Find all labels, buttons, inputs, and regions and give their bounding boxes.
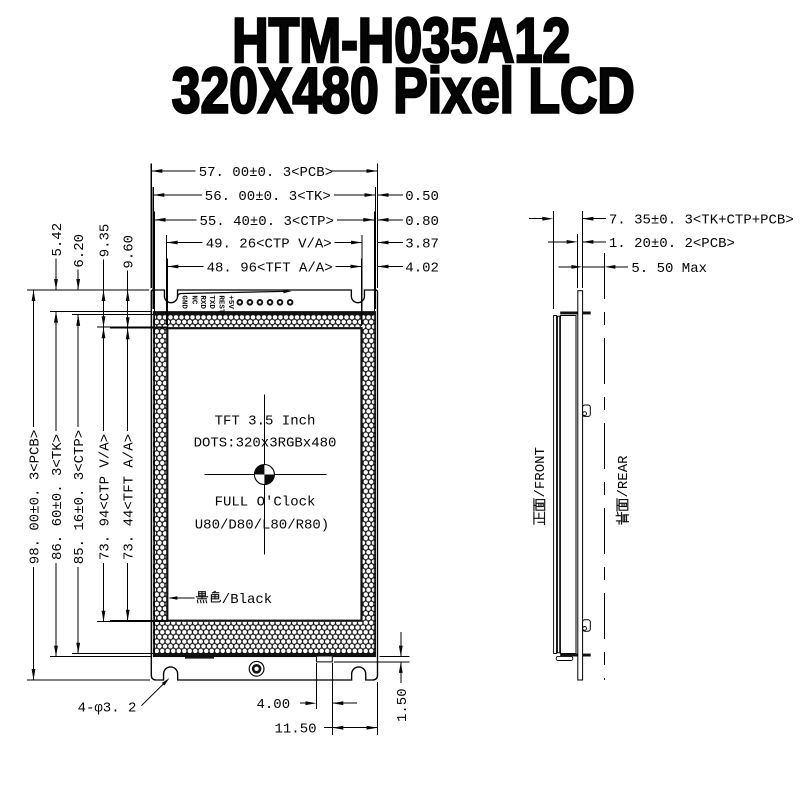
svg-text:DOTS:320x3RGBx480: DOTS:320x3RGBx480 (194, 436, 337, 452)
svg-text:48. 96<TFT A/A>: 48. 96<TFT A/A> (207, 261, 333, 277)
svg-text:9.60: 9.60 (122, 235, 138, 269)
svg-text:49. 26<CTP V/A>: 49. 26<CTP V/A> (206, 237, 332, 253)
svg-text:320X480 Pixel LCD: 320X480 Pixel LCD (172, 54, 635, 126)
svg-text:RXD: RXD (198, 295, 206, 309)
svg-text:73. 94<CTP V/A>: 73. 94<CTP V/A> (98, 434, 114, 560)
svg-text:11.50: 11.50 (275, 722, 317, 738)
svg-text:FULL O'Clock: FULL O'Clock (215, 495, 316, 511)
svg-text:73. 44<TFT A/A>: 73. 44<TFT A/A> (122, 434, 138, 560)
svg-text:1.50: 1.50 (395, 688, 411, 722)
svg-text:6.20: 6.20 (72, 234, 88, 268)
svg-text:98. 00±0. 3<PCB>: 98. 00±0. 3<PCB> (28, 430, 44, 564)
svg-text:0.50: 0.50 (405, 189, 439, 205)
svg-text:85. 16±0. 3<CTP>: 85. 16±0. 3<CTP> (72, 430, 88, 564)
svg-text:/Black: /Black (222, 592, 272, 608)
svg-text:4.00: 4.00 (257, 697, 291, 713)
svg-text:1. 20±0. 2<PCB>: 1. 20±0. 2<PCB> (609, 236, 735, 252)
svg-text:86. 60±0. 3<TK>: 86. 60±0. 3<TK> (50, 434, 66, 560)
svg-text:GND: GND (180, 295, 188, 309)
svg-text:0.80: 0.80 (405, 214, 439, 230)
svg-text:+5V: +5V (226, 295, 234, 309)
svg-text:REST: REST (217, 295, 225, 314)
svg-text:7. 35±0. 3<TK+CTP+PCB>: 7. 35±0. 3<TK+CTP+PCB> (609, 213, 794, 229)
svg-text:4.02: 4.02 (405, 261, 439, 277)
svg-text:/FRONT: /FRONT (533, 447, 549, 497)
svg-text:U80/D80/L80/R80): U80/D80/L80/R80) (195, 518, 329, 534)
svg-text:/REAR: /REAR (616, 455, 632, 498)
svg-text:4-φ3. 2: 4-φ3. 2 (78, 701, 137, 717)
svg-text:5.42: 5.42 (50, 223, 66, 257)
svg-text:57. 00±0. 3<PCB>: 57. 00±0. 3<PCB> (199, 165, 333, 181)
svg-text:5. 50 Max: 5. 50 Max (631, 261, 707, 277)
svg-text:56. 00±0. 3<TK>: 56. 00±0. 3<TK> (205, 189, 331, 205)
svg-text:NC: NC (190, 295, 198, 305)
svg-text:9.35: 9.35 (98, 224, 114, 258)
svg-text:55. 40±0. 3<CTP>: 55. 40±0. 3<CTP> (200, 214, 334, 230)
svg-text:TFT 3.5 Inch: TFT 3.5 Inch (215, 414, 316, 430)
svg-text:TXD: TXD (207, 295, 215, 309)
svg-text:3.87: 3.87 (405, 237, 439, 253)
